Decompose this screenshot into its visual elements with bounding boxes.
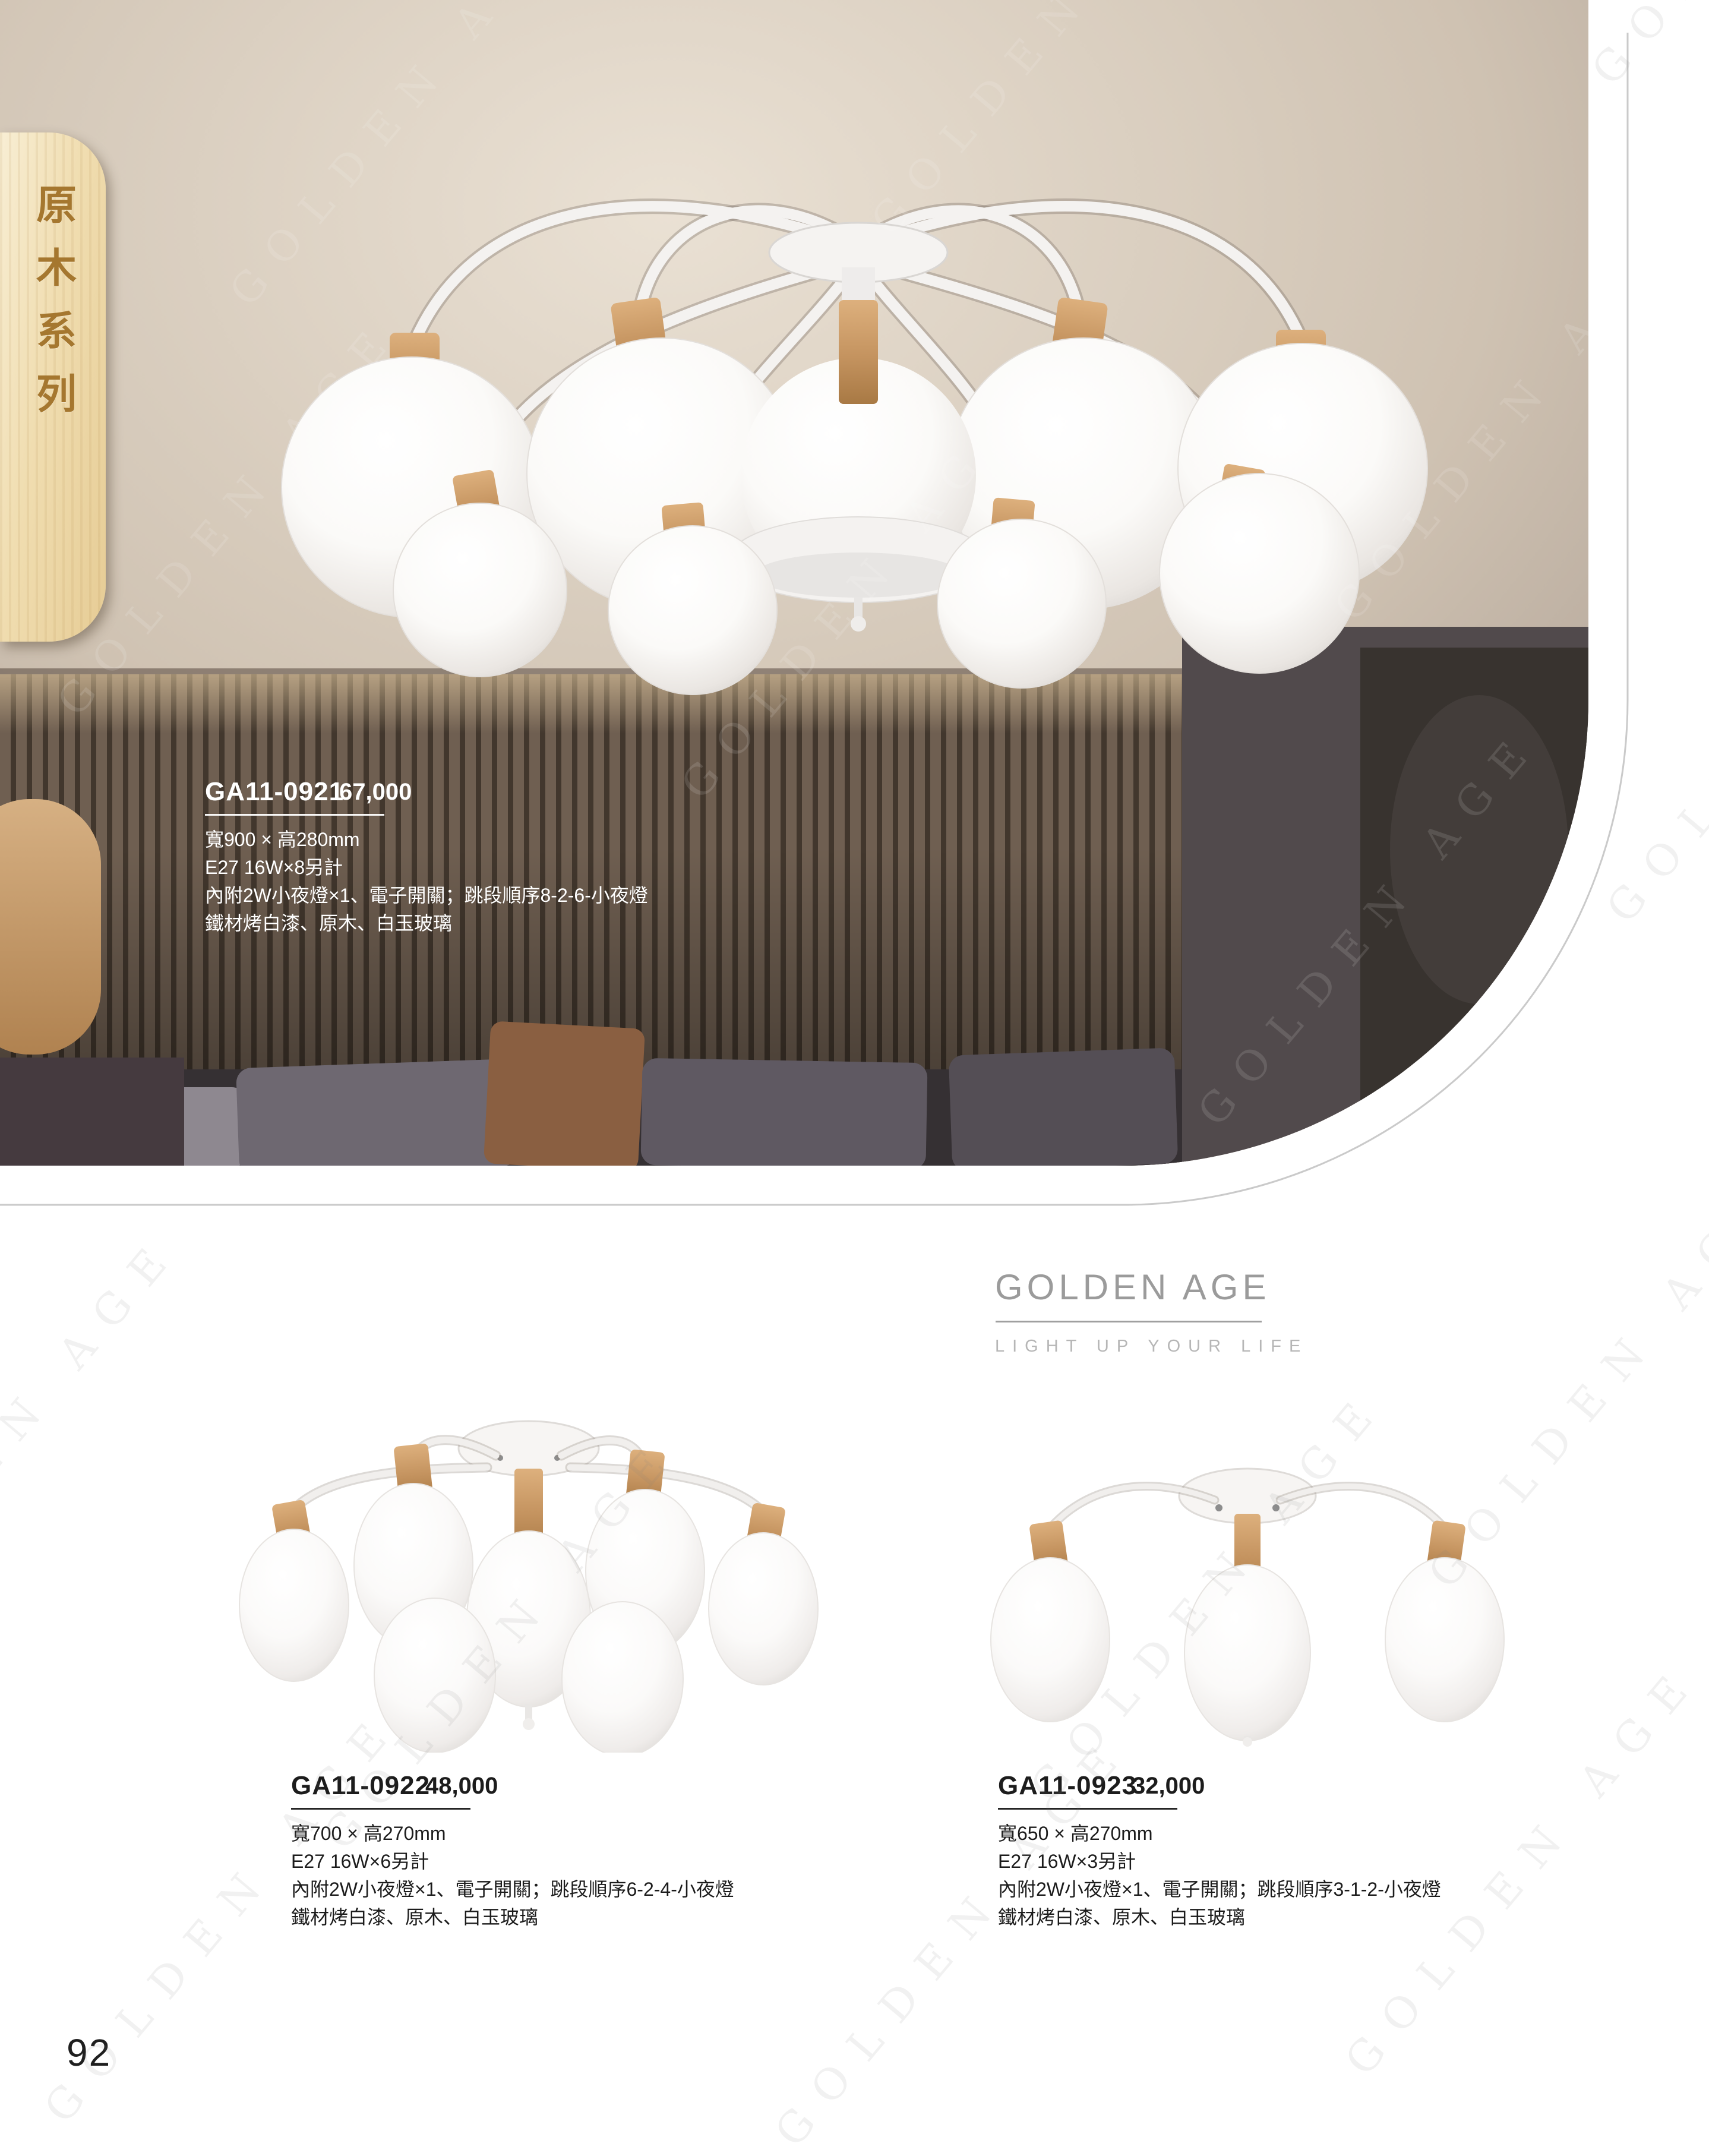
product-info-ga11-0921: GA11-0921 67,000 寬900 × 高280mm E27 16W×8… [205,774,858,937]
spec-switch: 內附2W小夜燈×1、電子開關；跳段順序3-1-2-小夜燈 [998,1876,1651,1904]
ceiling-lamp-6-light-illustration [239,1421,818,1753]
product-header: GA11-0923 32,000 [998,1767,1651,1801]
brand-logo: GOLDEN AGE LIGHT UP YOUR LIFE [995,1267,1262,1356]
product-specs: 寬650 × 高270mm E27 16W×3另計 內附2W小夜燈×1、電子開關… [998,1820,1651,1931]
product-header: GA11-0921 67,000 [205,774,858,807]
spec-dimensions: 寬700 × 高270mm [291,1820,944,1848]
product-info-ga11-0922: GA11-0922 48,000 寬700 × 高270mm E27 16W×6… [291,1767,944,1931]
brand-name: GOLDEN AGE [995,1267,1262,1308]
catalog-page: { "page": { "number": "92" }, "series_ta… [0,0,1709,2138]
ceiling-lamp-3-light-illustration [991,1469,1504,1747]
product-model: GA11-0921 [205,777,344,807]
product-price: 32,000 [1132,1773,1205,1800]
spec-dimensions: 寬650 × 高270mm [998,1820,1651,1848]
watermark-text: GOLDEN AGE [1582,0,1709,94]
product-price: 48,000 [425,1773,498,1800]
spec-material: 鐵材烤白漆、原木、白玉玻璃 [205,910,858,937]
product-specs: 寬900 × 高280mm E27 16W×8另計 內附2W小夜燈×1、電子開關… [205,826,858,937]
page-number: 92 [67,2031,111,2075]
product-info-ga11-0923: GA11-0923 32,000 寬650 × 高270mm E27 16W×3… [998,1767,1651,1931]
spec-bulb: E27 16W×3另計 [998,1848,1651,1876]
product-header: GA11-0922 48,000 [291,1767,944,1801]
product-model: GA11-0922 [291,1771,430,1801]
spec-material: 鐵材烤白漆、原木、白玉玻璃 [291,1904,944,1931]
divider-line [998,1808,1177,1810]
watermark-text: GOLDEN AGE [0,1223,190,1657]
hero-photo: GOLDEN AGE GOLDEN AGE GOLDEN AGE GOLDEN … [0,0,1588,1166]
spec-material: 鐵材烤白漆、原木、白玉玻璃 [998,1904,1651,1931]
divider-line [291,1808,470,1810]
spec-switch: 內附2W小夜燈×1、電子開關；跳段順序6-2-4-小夜燈 [291,1876,944,1904]
brand-tagline: LIGHT UP YOUR LIFE [995,1337,1262,1356]
spec-switch: 內附2W小夜燈×1、電子開關；跳段順序8-2-6-小夜燈 [205,882,858,910]
series-tab: 原木系列 [0,132,106,642]
spec-bulb: E27 16W×6另計 [291,1848,944,1876]
product-price: 67,000 [339,779,412,806]
spec-bulb: E27 16W×8另計 [205,854,858,882]
product-specs: 寬700 × 高270mm E27 16W×6另計 內附2W小夜燈×1、電子開關… [291,1820,944,1931]
watermark-text: GOLDEN AGE [1597,498,1709,932]
series-tab-label: 原木系列 [24,184,83,435]
spec-dimensions: 寬900 × 高280mm [205,826,858,854]
product-photo-ga11-0923 [950,1444,1544,1747]
product-photo-ga11-0922 [226,1414,832,1753]
product-model: GA11-0923 [998,1771,1137,1801]
brand-rule [996,1321,1262,1322]
divider-line [205,814,384,816]
